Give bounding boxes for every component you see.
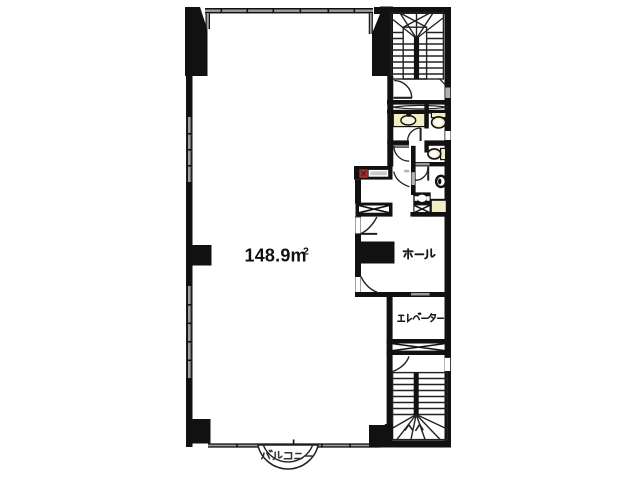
svg-text:2: 2 bbox=[303, 246, 309, 258]
svg-text:148.9m: 148.9m bbox=[245, 245, 307, 265]
